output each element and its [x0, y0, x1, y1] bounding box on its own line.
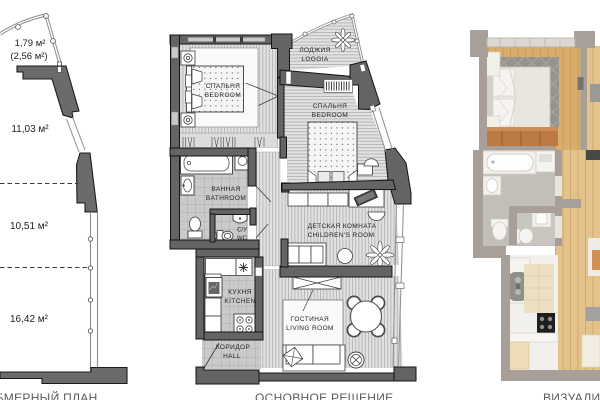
svg-text:ДЕТСКАЯ КОМНАТА: ДЕТСКАЯ КОМНАТА [308, 223, 377, 230]
svg-text:КУХНЯ: КУХНЯ [228, 289, 252, 296]
svg-text:BEDROOM: BEDROOM [312, 112, 348, 119]
svg-text:LIVING ROOM: LIVING ROOM [286, 325, 334, 332]
svg-text:CHILDREN'S ROOM: CHILDREN'S ROOM [308, 232, 375, 239]
svg-text:С/У: С/У [237, 228, 247, 234]
svg-text:(2,56 м²): (2,56 м²) [10, 51, 47, 62]
svg-text:ВАННАЯ: ВАННАЯ [211, 186, 240, 193]
svg-text:BEDROOM: BEDROOM [205, 92, 241, 99]
svg-text:ОСНОВНОЕ РЕШЕНИЕ: ОСНОВНОЕ РЕШЕНИЕ [255, 391, 393, 400]
svg-text:СПАЛЬНЯ: СПАЛЬНЯ [313, 103, 348, 110]
svg-text:СПАЛЬНЯ: СПАЛЬНЯ [206, 83, 241, 90]
svg-text:10,51 м²: 10,51 м² [10, 221, 49, 232]
svg-text:HALL: HALL [223, 353, 241, 360]
svg-text:11,03 м²: 11,03 м² [11, 124, 49, 135]
svg-text:BATHROOM: BATHROOM [206, 195, 246, 202]
svg-text:1,79 м²: 1,79 м² [15, 38, 46, 49]
svg-text:ГОСТИНАЯ: ГОСТИНАЯ [291, 316, 329, 323]
svg-text:KITCHEN: KITCHEN [224, 298, 255, 305]
svg-text:ВИЗУАЛИЗАЦИЯ: ВИЗУАЛИЗАЦИЯ [543, 391, 600, 400]
svg-text:ЛОДЖИЯ: ЛОДЖИЯ [299, 47, 330, 54]
svg-text:16,42 м²: 16,42 м² [10, 314, 49, 325]
svg-text:LOGGIA: LOGGIA [301, 56, 329, 63]
svg-text:ОБМЕРНЫЙ ПЛАН: ОБМЕРНЫЙ ПЛАН [0, 390, 98, 400]
svg-text:КОРИДОР: КОРИДОР [216, 344, 250, 351]
